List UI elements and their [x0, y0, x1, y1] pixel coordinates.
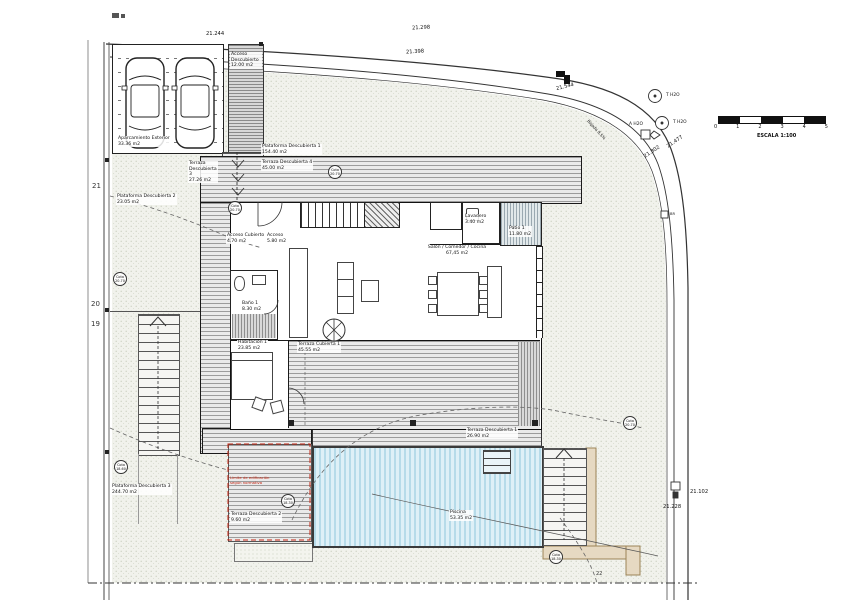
area-name: Habitación 1: [238, 340, 267, 346]
area-value: 8.30 m2: [242, 307, 261, 313]
scale-tick: 2: [758, 124, 761, 130]
area-value: 53.35 m2: [450, 516, 472, 522]
area-label-bano1: Baño 1 8.30 m2: [241, 301, 262, 312]
scale-cell: [740, 117, 761, 123]
water-meter-label: A H2O: [629, 122, 643, 127]
cota-marker: Cota 18.30: [549, 550, 563, 564]
area-name: Salón / Comedor / Cocina: [421, 245, 493, 251]
area-value: 45.00 m2: [262, 166, 312, 172]
dining-chair: [479, 276, 488, 285]
pool-steps: [483, 450, 511, 474]
area-value: 23.85 m2: [238, 346, 267, 352]
scale-tick: 3: [780, 124, 783, 130]
red-annotation: Límite de edificación según normativa: [230, 476, 269, 485]
cota-marker: Cota 20.70: [113, 272, 127, 286]
area-name: Terraza Descubierta 4: [262, 160, 312, 166]
area-label-plataforma1: Plataforma Descubierta 1 154.40 m2: [261, 144, 322, 155]
dining-chair: [479, 304, 488, 313]
cota-value: 18.30: [550, 557, 562, 561]
contour-number: 21: [92, 182, 101, 190]
walkway: [234, 543, 313, 562]
garden-stairs-left: [138, 314, 180, 456]
dining-chair: [428, 304, 437, 313]
site-plan-drawing: 21.244 21.298 21.398 21.544 21.477 21.80…: [0, 0, 847, 600]
cota-marker: Cota 20.70: [623, 416, 637, 430]
cota-value: 18.30: [282, 501, 294, 505]
dining-chair: [428, 290, 437, 299]
area-label-plataforma2: Plataforma Descubierta 2 23.05 m2: [116, 194, 177, 205]
utility-box-label: BR: [670, 212, 675, 216]
area-value: 33.36 m2: [118, 142, 170, 148]
contour-number: 19: [91, 320, 100, 328]
area-label-piscina: Piscina 53.35 m2: [449, 510, 473, 521]
area-value: 27.26 m2: [189, 178, 217, 184]
cota-value: 20.70: [624, 423, 636, 427]
kitchen-counter: [289, 248, 308, 338]
area-value: 26.90 m2: [467, 434, 517, 440]
area-value: 5.80 m2: [267, 239, 286, 245]
terrace-2-block: [228, 444, 312, 542]
area-value: 4.70 m2: [227, 239, 264, 245]
cota-marker: Cota 20.70: [228, 201, 242, 215]
contour-number: 20: [91, 300, 100, 308]
area-label-terraza3: Terraza Descubierta 3 27.26 m2: [188, 161, 218, 183]
interior-stairs: [300, 202, 366, 228]
scale-bar: [718, 116, 826, 124]
interior-ramp-hatch: [364, 202, 400, 228]
area-value: 3.40 m2: [465, 220, 486, 226]
area-value: 9.60 m2: [231, 518, 281, 524]
water-tap-label: T H2O: [673, 120, 687, 125]
area-label-acceso-descubierto: Acceso Descubierto 12.00 m2: [230, 52, 262, 69]
cota-marker: Cota 20.70: [328, 165, 342, 179]
scale-cell: [719, 117, 740, 123]
boundary-dim: 21.244: [206, 31, 224, 37]
column: [410, 420, 416, 426]
area-name: Terraza Descubierta 1: [467, 428, 517, 434]
scale-label: ESCALA 1:100: [757, 133, 796, 139]
kitchen-island: [487, 266, 502, 318]
platform-edge-line: [110, 311, 200, 312]
bathroom-floor-hatch: [232, 314, 276, 338]
area-value: 12.00 m2: [231, 63, 261, 69]
area-value: 11.80 m2: [509, 232, 531, 238]
sofa: [337, 262, 354, 314]
garden-stairs-left-wall: [177, 454, 178, 524]
area-name: Plataforma Descubierta 2: [117, 194, 176, 200]
cota-marker: Cota 18.30: [281, 494, 295, 508]
area-name: Aparcamiento Exterior: [118, 136, 170, 142]
water-tap-label: T H2O: [666, 93, 680, 98]
column: [532, 420, 538, 426]
contour-number: 22: [596, 571, 602, 577]
terrace-strip-top: [200, 156, 582, 204]
area-value: 154.40 m2: [262, 150, 321, 156]
scale-cell: [783, 117, 804, 123]
wall-bedroom-right: [288, 340, 289, 428]
area-name: Terraza Descubierta 3: [189, 161, 217, 178]
boundary-corner-marker: [112, 13, 125, 18]
covered-terrace-pier-band: [518, 342, 540, 426]
patio-1: [500, 202, 542, 246]
cota-marker: Cota 18.60: [114, 460, 128, 474]
bath-sink: [252, 275, 266, 285]
area-value: 45.55 m2: [298, 348, 340, 354]
boundary-dim: 21.298: [412, 25, 430, 32]
boundary-dim: 21.228: [663, 504, 681, 510]
window-band-right: [536, 246, 543, 338]
dining-chair: [479, 290, 488, 299]
scale-tick: 1: [736, 124, 739, 130]
scale-tick: 4: [803, 124, 806, 130]
area-label-salon: Salón / Comedor / Cocina 67,45 m2: [420, 245, 494, 256]
dining-chair: [428, 276, 437, 285]
area-value: 23.05 m2: [117, 200, 176, 206]
area-name: Terraza Descubierta 2: [231, 512, 281, 518]
area-label-terraza4: Terraza Descubierta 4 45.00 m2: [261, 160, 313, 171]
area-name: Lavadero: [465, 214, 486, 220]
garden-stairs-right: [543, 448, 587, 546]
area-label-terraza1: Terraza Descubierta 1 26.90 m2: [466, 428, 518, 439]
cota-value: 20.70: [229, 208, 241, 212]
area-label-patio1: Patio 1 11.80 m2: [508, 226, 532, 237]
scale-tick: 0: [714, 124, 717, 130]
bed-pillow-line: [231, 360, 273, 361]
covered-terrace: [288, 340, 540, 429]
boundary-dim: 21.398: [406, 48, 425, 55]
scale-ticks: 0 1 2 3 4 5: [714, 124, 828, 130]
area-value: 244.70 m2: [112, 490, 171, 496]
area-name: Acceso Cubierto: [227, 233, 264, 239]
area-name: Acceso Descubierto: [231, 52, 261, 63]
boundary-dim: 21.102: [690, 489, 708, 495]
dining-table: [437, 272, 479, 316]
scale-tick: 5: [825, 124, 828, 130]
area-name: Plataforma Descubierta 1: [262, 144, 321, 150]
area-label-terraza2: Terraza Descubierta 2 9.60 m2: [230, 512, 282, 523]
area-label-aparcamiento: Aparcamiento Exterior 33.36 m2: [117, 136, 171, 147]
red-annotation-line2: según normativa: [230, 481, 269, 486]
cota-value: 20.70: [114, 279, 126, 283]
toilet: [234, 276, 245, 291]
wc-room: [430, 202, 462, 230]
area-label-habitacion1: Habitación 1 23.85 m2: [237, 340, 268, 351]
cota-value: 20.70: [329, 172, 341, 176]
area-value: 67,45 m2: [421, 251, 493, 257]
area-label-terraza-cubierta1: Terraza Cubierta 1 45.55 m2: [297, 342, 341, 353]
area-name: Terraza Cubierta 1: [298, 342, 340, 348]
scale-cell: [804, 117, 825, 123]
column: [288, 420, 294, 426]
coffee-table: [361, 280, 379, 302]
area-name: Plataforma Descubierta 3: [112, 484, 171, 490]
area-label-lavadero: Lavadero 3.40 m2: [464, 214, 487, 225]
cota-value: 18.60: [115, 467, 127, 471]
area-label-plataforma3: Plataforma Descubierta 3 244.70 m2: [111, 484, 172, 495]
scale-cell: [761, 117, 782, 123]
area-label-acceso-cubierto: Acceso Cubierto 4.70 m2: [226, 233, 265, 244]
area-label-acceso: Acceso 5.80 m2: [266, 233, 287, 244]
